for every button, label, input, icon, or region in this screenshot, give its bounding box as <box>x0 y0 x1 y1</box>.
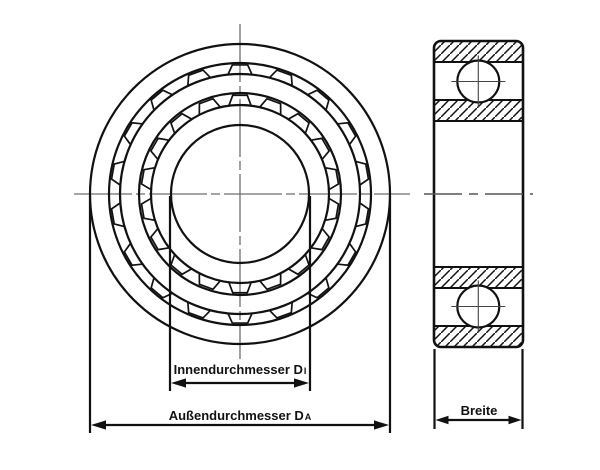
inner-diameter-subscript: I <box>304 366 307 376</box>
side-view <box>424 41 533 347</box>
outer-diameter-label: Außendurchmesser DA <box>140 408 340 425</box>
dimension-arrowhead <box>91 420 106 429</box>
width-label-text: Breite <box>461 403 498 418</box>
outer-diameter-label-text: Außendurchmesser D <box>169 408 304 423</box>
cage-bridge-outer <box>308 278 329 297</box>
dimension-arrowhead <box>294 378 309 387</box>
width-label: Breite <box>429 403 529 418</box>
inner-diameter-label: Innendurchmesser DI <box>140 362 340 379</box>
dimension-arrowhead <box>171 378 186 387</box>
front-view <box>74 24 410 359</box>
cage-bridge-outer <box>308 90 329 109</box>
bearing-drawing: Innendurchmesser DI Außendurchmesser DA … <box>0 0 600 470</box>
cage-bridge-outer <box>151 90 172 109</box>
outer-diameter-subscript: A <box>305 412 312 422</box>
inner-diameter-label-text: Innendurchmesser D <box>174 362 303 377</box>
bearing-drawing-svg <box>0 0 600 470</box>
cage-bridge-outer <box>151 278 172 297</box>
dimension-arrowhead <box>374 420 389 429</box>
